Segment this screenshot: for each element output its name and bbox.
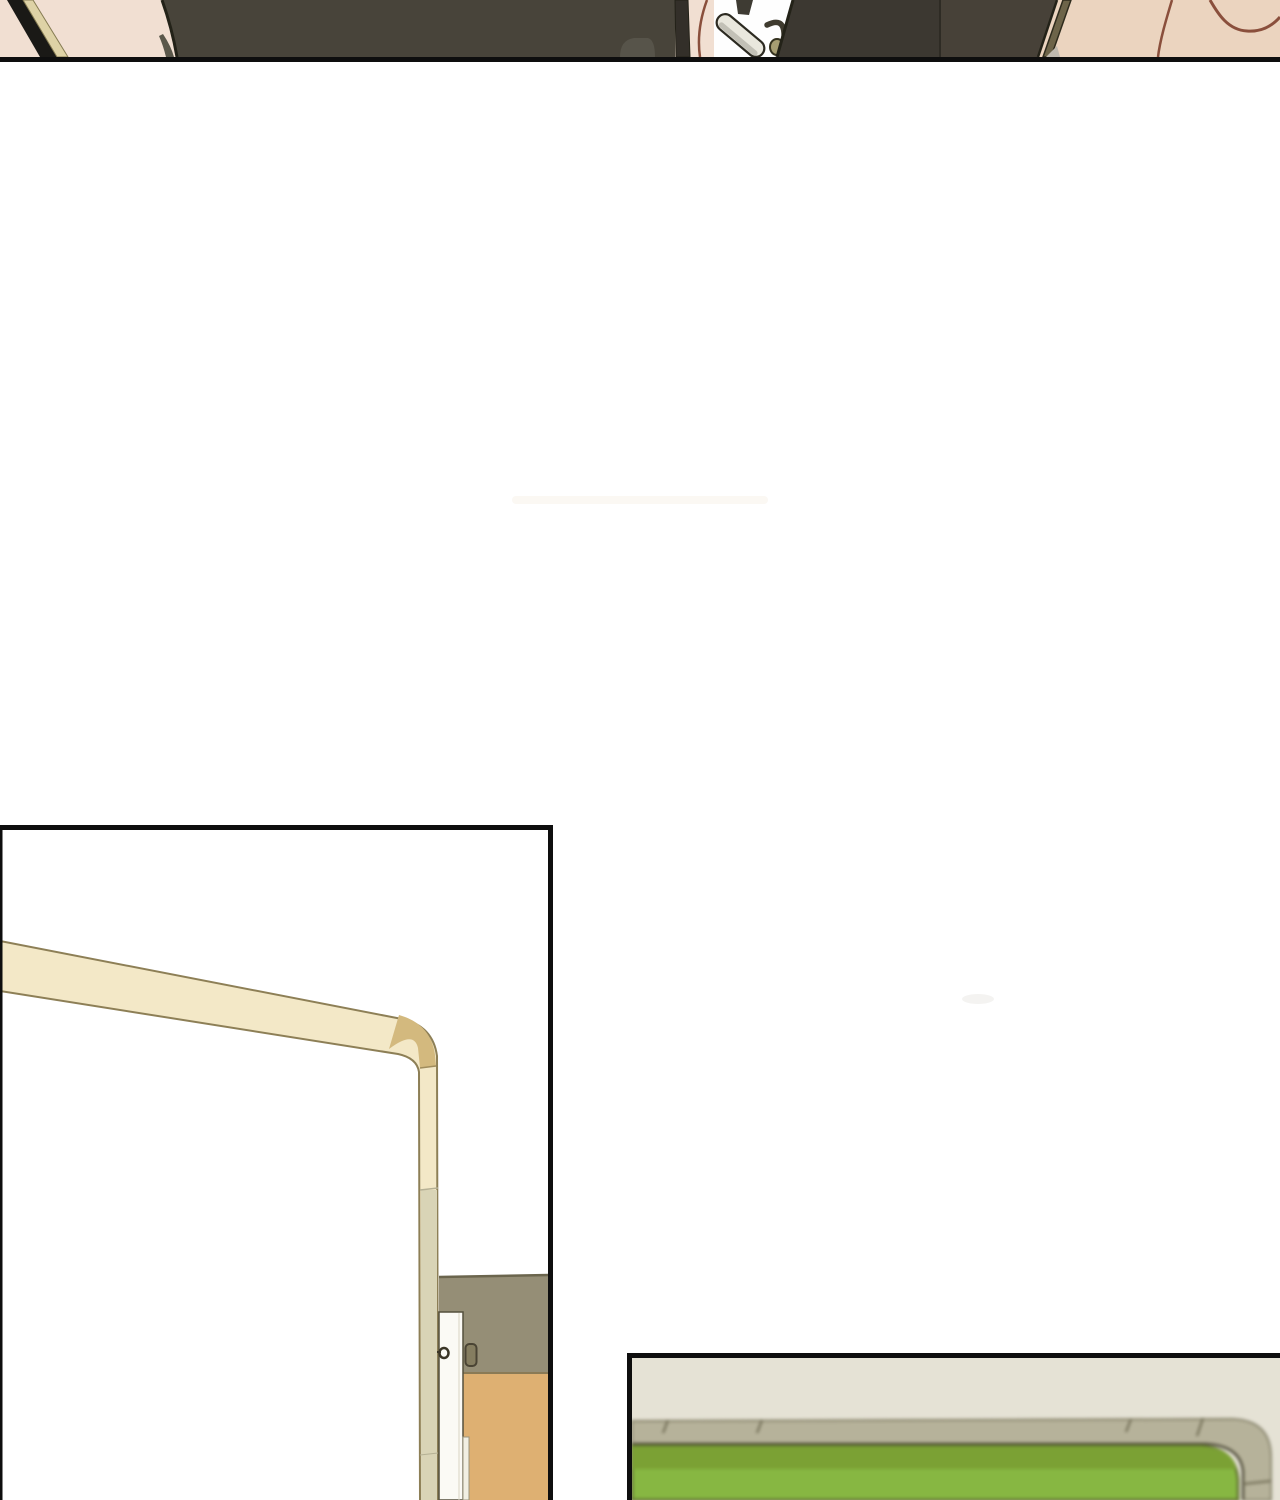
- chair-leg-strip: [675, 0, 690, 57]
- panel-door-border-right: [548, 825, 553, 1500]
- panel-board-border-left: [627, 1353, 632, 1500]
- panel-door-border-top: [0, 825, 553, 830]
- panel-green-board: [600, 1340, 1280, 1500]
- board-blurred-content: [632, 1418, 1271, 1500]
- faint-bubble-remnant: [512, 496, 768, 504]
- door-tan-panel: [463, 1373, 549, 1500]
- panel-door-border-left: [0, 825, 3, 1500]
- wall-bracket: [466, 1344, 477, 1366]
- faint-smudge: [962, 994, 994, 1004]
- webtoon-page: [0, 0, 1280, 1500]
- panel-top-crop: [0, 0, 1280, 62]
- panel-door: [0, 820, 560, 1500]
- dark-figure-right: [940, 0, 1057, 57]
- door-frame-rail: [0, 941, 438, 1500]
- panel-board-border-top: [627, 1353, 1280, 1358]
- green-board-dark-band: [632, 1446, 1236, 1469]
- dark-figure-middle: [777, 0, 940, 57]
- door-white-strip: [463, 1437, 469, 1500]
- dark-figure-left: [162, 0, 675, 57]
- panel-top-border: [0, 57, 1280, 62]
